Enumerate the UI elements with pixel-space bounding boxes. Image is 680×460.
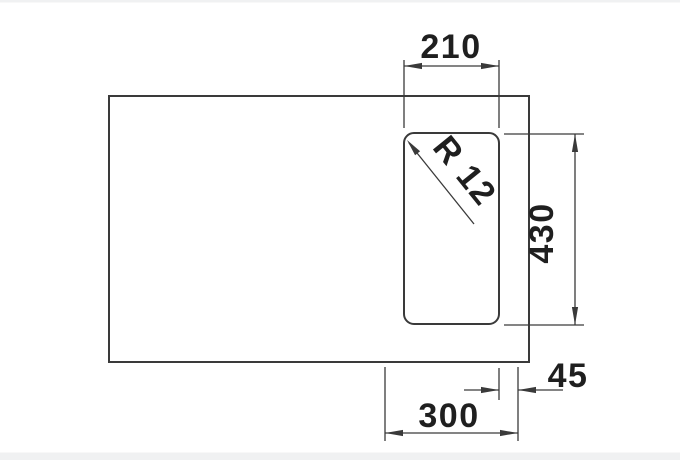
arrow-up-icon <box>572 134 578 152</box>
arrow-right-icon <box>481 387 499 393</box>
radius-callout: R 12 <box>407 129 504 224</box>
dimension-label-bottom-offset: 45 <box>548 357 589 395</box>
dimension-label-bottom-width: 300 <box>418 397 479 435</box>
arrow-right-icon <box>481 63 499 69</box>
dimension-bottom-width: 300 <box>385 367 518 441</box>
dimension-top-width: 210 <box>404 28 499 128</box>
dimension-right-height: 430 <box>504 134 584 325</box>
drawing-canvas: 210 430 R 12 45 <box>0 0 680 460</box>
arrow-right-icon <box>500 430 518 436</box>
sink-outline <box>109 96 529 362</box>
dimension-drawing: 210 430 R 12 45 <box>0 0 680 460</box>
dimension-bottom-offset: 45 <box>464 357 588 441</box>
dimension-label-right-height: 430 <box>523 202 561 263</box>
arrow-left-icon <box>518 387 536 393</box>
arrow-left-icon <box>385 430 403 436</box>
arrow-down-icon <box>572 307 578 325</box>
arrow-corner-icon <box>407 140 420 155</box>
dimension-label-corner-radius: R 12 <box>425 129 504 213</box>
page-edge-top <box>0 0 680 3</box>
dimension-label-top-width: 210 <box>420 28 481 66</box>
arrow-left-icon <box>404 63 422 69</box>
page-edge-bottom <box>0 453 680 460</box>
